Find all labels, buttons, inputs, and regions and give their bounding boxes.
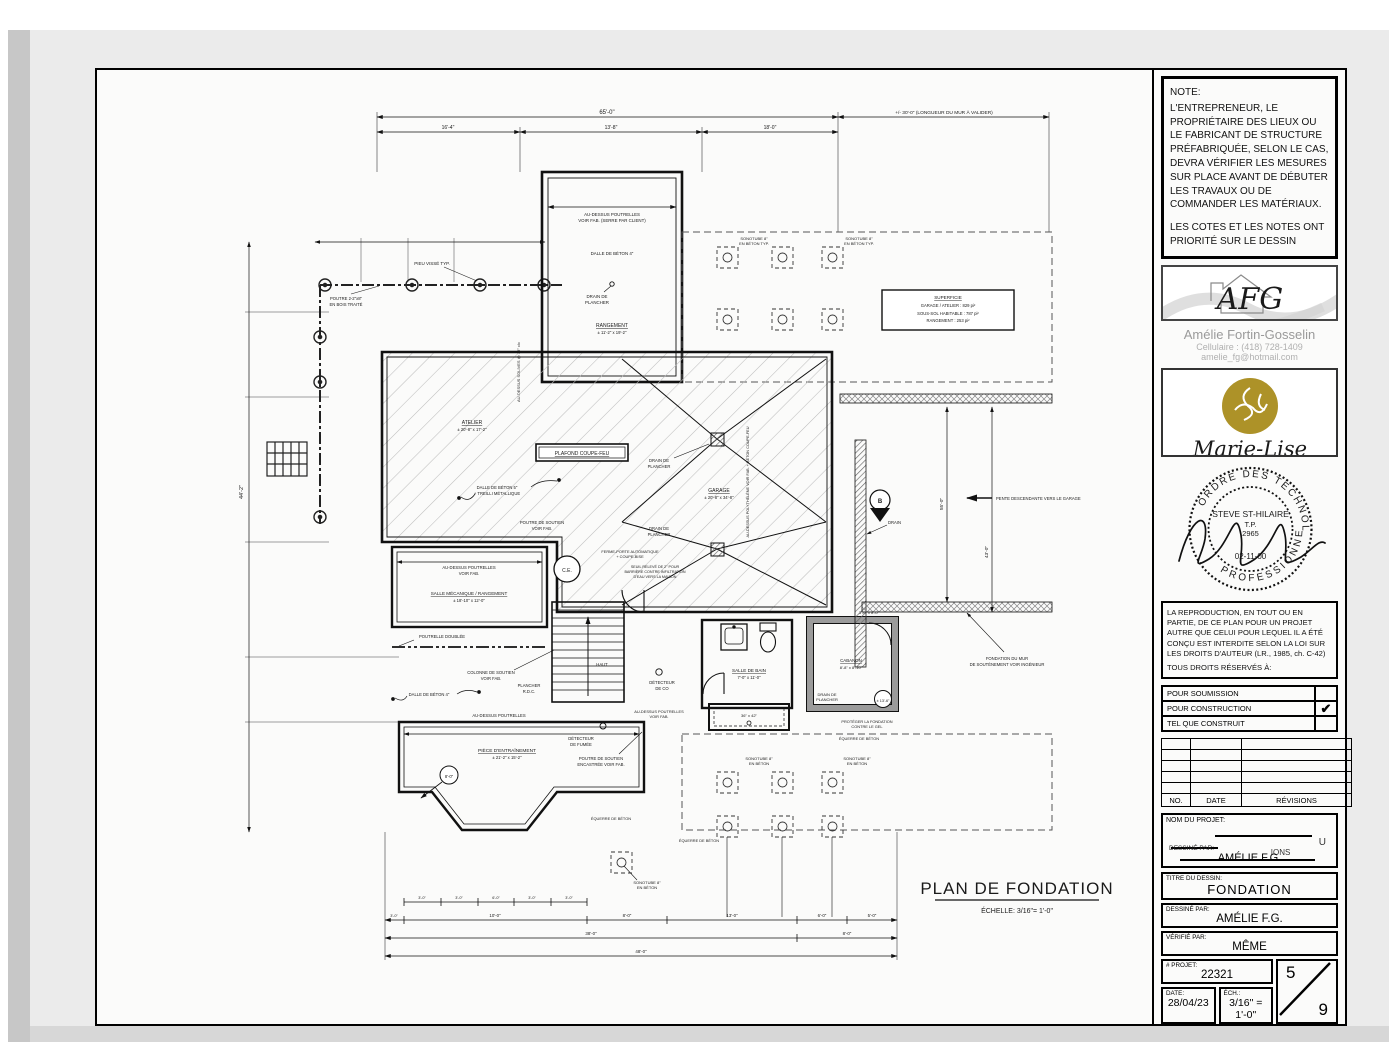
label-ps-2: VOIR FAB. <box>532 526 552 531</box>
label-drain-rangement-1: DRAIN DE <box>587 294 608 299</box>
label-dalle4-rangement: DALLE DE BÉTON 4" <box>591 251 634 256</box>
revision-cell <box>1242 739 1352 750</box>
poutre-enc-leader <box>619 732 642 754</box>
svg-text:FONDATION DU MUR: FONDATION DU MUR <box>986 656 1028 661</box>
label-aud-piece-1: AU-DESSUS POUTRELLES <box>472 713 525 718</box>
revision-cell <box>1162 783 1191 794</box>
label-atelier: ATELIER <box>462 420 483 426</box>
checkbox-row-construction: POUR CONSTRUCTION ✔ <box>1163 702 1336 717</box>
sheet-number-box: 5 9 <box>1276 959 1338 1024</box>
echelle-label: ÉCH.: <box>1224 990 1241 997</box>
svg-text:RANGEMENT : 253 pi²: RANGEMENT : 253 pi² <box>927 318 971 323</box>
revision-cell <box>1191 772 1242 783</box>
revision-cell <box>1162 739 1191 750</box>
dim-b13: 13'-0" <box>726 913 738 918</box>
plafond-coupe-feu-box: PLAFOND COUPE-FEU <box>536 444 628 461</box>
projet-label: # PROJET: <box>1166 962 1197 969</box>
revision-cell <box>1242 761 1352 772</box>
stamp-arc-top: ORDRE DES TECHNOLOGUES <box>1161 463 1311 533</box>
dim-sm0: 3'-0" <box>418 896 426 900</box>
plan-title: PLAN DE FONDATION <box>920 879 1113 898</box>
dim-sm4: 3'-0" <box>565 896 573 900</box>
colonne-leader <box>514 650 554 670</box>
dim-b3: 3'-0" <box>390 914 398 918</box>
revision-header-row: NO. DATE RÉVISIONS <box>1162 794 1352 807</box>
label-drain-cab-2: PLANCHER <box>816 697 838 702</box>
checkbox-cell[interactable] <box>1314 717 1336 730</box>
afg-tagline: dessinatrice en bâtiment <box>1196 319 1310 321</box>
svg-text:± 13'-6": ± 13'-6" <box>877 699 890 703</box>
stamp-title: T.P. <box>1245 520 1257 529</box>
label-equerre-b1: ÉQUERRE DE BÉTON <box>591 816 631 821</box>
label-dalle5-1: DALLE DE BÉTON 5" <box>477 485 518 490</box>
marielise-logo: Marie-Lise antiquité design <box>1163 370 1338 457</box>
revision-cell <box>1242 772 1352 783</box>
label-haut: HAUT <box>596 662 608 667</box>
checkbox-label: POUR CONSTRUCTION <box>1163 704 1314 713</box>
revision-cell <box>1191 761 1242 772</box>
label-atelier-size: ± 20'-8" x 17'-2" <box>457 427 487 432</box>
svg-text:DÉTECTEUR: DÉTECTEUR <box>568 736 594 741</box>
svg-text:DE SOUTÈNEMENT VOIR INGÉNIEUR: DE SOUTÈNEMENT VOIR INGÉNIEUR <box>970 662 1045 667</box>
label-poutre-encastree-2: ENCASTRÉE VOIR FAB. <box>577 762 624 767</box>
note-body-2: LES COTES ET LES NOTES ONT PRIORITÉ SUR … <box>1170 221 1329 249</box>
revision-table: NO. DATE RÉVISIONS <box>1161 738 1352 807</box>
checkbox-row-soumission: POUR SOUMISSION <box>1163 687 1336 702</box>
revision-cell <box>1191 783 1242 794</box>
revision-cell <box>1162 750 1191 761</box>
revision-header-date: DATE <box>1191 794 1242 807</box>
afg-contact: Amélie Fortin-Gosselin Cellulaire : (418… <box>1161 327 1338 362</box>
label-rdc-2: R.D.C. <box>523 689 536 694</box>
svg-text:SOUS-SOL HABITABLE : 787 pi²: SOUS-SOL HABITABLE : 787 pi² <box>917 311 979 316</box>
redaction-bar <box>1215 835 1312 837</box>
note-title: NOTE: <box>1170 86 1329 100</box>
marielise-name: Marie-Lise <box>1192 437 1307 457</box>
revision-cell <box>1162 772 1191 783</box>
dim-r43: 43'-0" <box>984 546 990 559</box>
svg-text:DE CO: DE CO <box>655 686 669 691</box>
sheet-number-total: 9 <box>1319 1000 1328 1020</box>
label-garage: GARAGE <box>708 488 730 494</box>
dim-b6: 6'-0" <box>818 913 827 918</box>
date-label: DATE: <box>1166 990 1184 997</box>
label-piece: PIÈCE D'ENTRAÎNEMENT <box>478 747 536 754</box>
dim-b8b: 8'-0" <box>843 931 852 936</box>
svg-text:B: B <box>878 499 883 505</box>
revision-cell <box>1242 750 1352 761</box>
label-dalle5-2: + TREILLI MÉTALLIQUE <box>474 491 520 496</box>
project-number-row: # PROJET: 22321 DATE: 28/04/23 ÉCH.: 3/1… <box>1161 959 1338 1024</box>
label-drain-wall: DRAIN <box>888 520 901 525</box>
label-rangement: RANGEMENT <box>596 323 628 329</box>
label-proteger-2: CONTRE LE GEL <box>851 724 883 729</box>
label-audessus-client-1: AU-DESSUS POUTRELLES <box>584 212 640 217</box>
label-sdb-size: 7'-0" x 11'-0" <box>737 675 761 680</box>
revision-cell <box>1191 750 1242 761</box>
dim-sm2: 6'-0" <box>492 896 500 900</box>
drain-wall-leader <box>867 525 887 534</box>
label-polythene: AU-DESSUS POLYTHÉLÈNE VOIR FAB. + BÉTON … <box>745 426 750 537</box>
dessine-box: DESSINÉ PAR: AMÉLIE F.G. <box>1161 903 1338 928</box>
svg-text:8'-0": 8'-0" <box>445 774 454 779</box>
professional-stamp: ORDRE DES TECHNOLOGUES PROFESSIONNELS ST… <box>1161 463 1338 595</box>
window-well <box>267 442 307 476</box>
checkbox-cell[interactable] <box>1314 687 1336 700</box>
dim-left-44: 44'-2" <box>239 485 245 499</box>
superficie-box: SUPERFICIE GARAGE / ATELIER : 829 pi² SO… <box>882 290 1014 330</box>
piece-entrainement-room <box>399 722 644 830</box>
dim-b48: 48'-0" <box>635 949 647 954</box>
label-pieu: PIEU VISSÉ TYP. <box>414 260 450 266</box>
label-seuil-3: D'EAU VERS LA MAISON <box>634 575 677 579</box>
plan-scale: ÉCHELLE: 3/16"= 1'-0" <box>981 906 1053 915</box>
plan-title-group: PLAN DE FONDATION ÉCHELLE: 3/16"= 1'-0" <box>920 879 1113 915</box>
revision-row <box>1162 739 1352 750</box>
label-equerre-b2: ÉQUERRE DE BÉTON <box>679 838 719 843</box>
detecteur-co: DÉTECTEUR DE CO <box>649 669 675 691</box>
dessine-par-label: DESSINÉ PAR: <box>1169 845 1214 852</box>
copyright-box: LA REPRODUCTION, EN TOUT OU EN PARTIE, D… <box>1161 601 1338 680</box>
revision-header-revisions: RÉVISIONS <box>1242 794 1352 807</box>
dim-b5: 5'-0" <box>868 913 877 918</box>
revision-row <box>1162 783 1352 794</box>
drawing-sheet: 65'-0" +/- 30'-0" (LONGUEUR DU MUR À VAL… <box>95 68 1347 1026</box>
sono-s-leader <box>624 866 637 880</box>
svg-text:PLAFOND COUPE-FEU: PLAFOND COUPE-FEU <box>555 451 610 457</box>
stairs <box>552 602 624 702</box>
dimensions-top <box>377 112 1049 232</box>
label-seuil-1: SEUIL RELEVÉ DE 2" POUR <box>631 564 680 569</box>
label-aud-bath-2: VOIR FAB. <box>649 714 668 719</box>
label-equerre-cab: ÉQUERRE DE BÉTON <box>839 736 879 741</box>
label-drain-garage-1: DRAIN DE <box>649 458 669 463</box>
stamp-seal: ORDRE DES TECHNOLOGUES PROFESSIONNELS ST… <box>1161 463 1340 595</box>
revision-cell <box>1242 783 1352 794</box>
label-sonotube-tr2-2: EN BÉTON TYP. <box>844 241 874 246</box>
dim-r55: 55'-0" <box>939 498 945 511</box>
dim-b38: 38'-0" <box>585 931 597 936</box>
afg-logo-box: AFG dessinatrice en bâtiment <box>1161 265 1338 321</box>
svg-text:PENTE DESCENDANTE VERS LE GARA: PENTE DESCENDANTE VERS LE GARAGE <box>996 496 1081 501</box>
echelle-box: ÉCH.: 3/16" = 1'-0" <box>1219 987 1274 1024</box>
project-name-box: NOM DU PROJET: U IONS DESSINÉ PAR: AMÉLI… <box>1161 813 1338 868</box>
label-sonotube-b1-2: EN BÉTON <box>749 761 769 766</box>
svg-text:DÉTECTEUR: DÉTECTEUR <box>649 680 675 685</box>
fondation-mur-callout: FONDATION DU MUR DE SOUTÈNEMENT VOIR ING… <box>967 613 1044 667</box>
label-drain-garage-2: PLANCHER <box>648 464 671 469</box>
label-piece-size: ± 21'-2" x 15'-2" <box>492 755 522 760</box>
label-rdc-1: PLANCHER <box>518 683 541 688</box>
label-sonotube-s-2: EN BÉTON <box>637 885 657 890</box>
revision-row <box>1162 761 1352 772</box>
rangement-room <box>542 172 682 382</box>
desktop-bottom-bar <box>30 1026 1389 1042</box>
svg-text:GARAGE / ATELIER : 829 pi²: GARAGE / ATELIER : 829 pi² <box>921 303 976 308</box>
height-13-marker: ± 13'-6" <box>875 691 892 708</box>
stamp-number: 2965 <box>1242 529 1259 538</box>
stamp-name: STEVE ST-HILAIRE <box>1212 509 1289 519</box>
label-salle-mec: SALLE MÉCANIQUE / RANGEMENT <box>431 590 508 596</box>
marielise-logo-box: Marie-Lise antiquité design <box>1161 368 1338 457</box>
pente-callout: PENTE DESCENDANTE VERS LE GARAGE <box>967 496 1081 501</box>
note-body: L'ENTREPRENEUR, LE PROPRIÉTAIRE DES LIEU… <box>1170 102 1329 212</box>
checkbox-row-telque: TEL QUE CONSTRUIT <box>1163 717 1336 732</box>
designer-name: Amélie Fortin-Gosselin <box>1161 327 1338 342</box>
checkmark-icon[interactable]: ✔ <box>1314 702 1336 715</box>
dessine-par-value: AMÉLIE F.G. <box>1163 852 1336 864</box>
label-aud-smec-2: VOIR FAB. <box>459 571 479 576</box>
verifie-label: VÉRIFIÉ PAR: <box>1166 934 1206 941</box>
copyright-body: LA REPRODUCTION, EN TOUT OU EN PARTIE, D… <box>1167 608 1332 659</box>
label-poutre-encastree-1: POUTRE DE SOUTIEN <box>579 756 623 761</box>
bathroom <box>702 620 792 708</box>
label-shower-size: 36" x 42" <box>741 713 758 718</box>
date-box: DATE: 28/04/23 <box>1161 987 1216 1024</box>
retaining-wall <box>840 394 1052 667</box>
checkbox-label: POUR SOUMISSION <box>1163 689 1314 698</box>
label-salle-mec-size: ± 18'-10" x 12'-0" <box>453 598 485 603</box>
checkbox-label: TEL QUE CONSTRUIT <box>1163 719 1314 728</box>
label-ferme-2: + COUPE-BISE <box>616 554 644 559</box>
chauffe-eau: C.E. <box>554 556 580 582</box>
label-drain-garage2-1: DRAIN DE <box>649 526 669 531</box>
svg-text:SUPERFICIE: SUPERFICIE <box>934 295 962 300</box>
plan-drawing-area: 65'-0" +/- 30'-0" (LONGUEUR DU MUR À VAL… <box>99 72 1149 1020</box>
label-audessus-client-2: VOIR FAB. (SERRE PAR CLIENT) <box>578 218 646 223</box>
project-name-fragment: U <box>1319 837 1326 848</box>
dim-top-mur: +/- 30'-0" (LONGUEUR DU MUR À VALIDER) <box>895 109 993 116</box>
designer-phone: Cellulaire : (418) 728-1409 <box>1161 342 1338 352</box>
screenshot-stage: 65'-0" +/- 30'-0" (LONGUEUR DU MUR À VAL… <box>0 0 1389 1042</box>
label-ps-1: POUTRE DE SOUTIEN <box>520 520 564 525</box>
copyright-footer: TOUS DROITS RÉSERVÉS À: <box>1167 663 1332 673</box>
designer-email[interactable]: amelie_fg@hotmail.com <box>1161 352 1338 362</box>
label-poutre-bois-2: EN BOIS TRAITÉ <box>330 302 363 307</box>
dim-sm3: 3'-0" <box>528 896 536 900</box>
dimensions-right <box>947 407 992 612</box>
revision-row <box>1162 772 1352 783</box>
revision-row <box>1162 750 1352 761</box>
title-block-column: NOTE: L'ENTREPRENEUR, LE PROPRIÉTAIRE DE… <box>1152 70 1345 1024</box>
afg-initials: AFG <box>1214 282 1283 317</box>
label-aud-smec-1: AU-DESSUS POUTRELLES <box>442 565 495 570</box>
revision-header-no: NO. <box>1162 794 1191 807</box>
dim-sm1: 3'-0" <box>455 896 463 900</box>
label-poutrelle-doublee: POUTRELLE DOUBLÉE <box>419 634 465 639</box>
titre-dessin-box: TITRE DU DESSIN: FONDATION <box>1161 872 1338 900</box>
projet-box: # PROJET: 22321 <box>1161 959 1273 984</box>
dessine-label: DESSINÉ PAR: <box>1166 906 1210 913</box>
label-sonotube-b2-2: EN BÉTON <box>847 761 867 766</box>
label-garage-size: ± 20'-8" x 34'-8" <box>704 495 734 500</box>
svg-text:C.E.: C.E. <box>562 568 572 574</box>
label-dalle4-piece: DALLE DE BÉTON 4" <box>409 692 450 697</box>
svg-text:ORDRE DES TECHNOLOGUES: ORDRE DES TECHNOLOGUES <box>1161 463 1311 533</box>
date-ech-row: DATE: 28/04/23 ÉCH.: 3/16" = 1'-0" <box>1161 987 1273 1024</box>
project-name-label: NOM DU PROJET: <box>1166 817 1225 824</box>
note-box: NOTE: L'ENTREPRENEUR, LE PROPRIÉTAIRE DE… <box>1161 76 1338 259</box>
foundation-plan-svg: 65'-0" +/- 30'-0" (LONGUEUR DU MUR À VAL… <box>99 72 1149 1020</box>
section-marker-b: B <box>870 490 890 522</box>
label-sonotube-tr-2: EN BÉTON TYP. <box>739 241 769 246</box>
label-sdb: SALLE DE BAIN <box>732 668 766 673</box>
revision-cell <box>1191 739 1242 750</box>
dim-b10: 10'-0" <box>489 913 501 918</box>
revision-cell <box>1162 761 1191 772</box>
checkbox-table: POUR SOUMISSION POUR CONSTRUCTION ✔ TEL … <box>1161 685 1338 732</box>
dim-top-overall: 65'-0" <box>599 110 614 116</box>
titre-label: TITRE DU DESSIN: <box>1166 875 1222 882</box>
salle-mecanique-room <box>392 547 547 647</box>
desktop-left-bar <box>8 30 30 1042</box>
label-seuil-2: BARRIÈRE CONTRE INFILTRATION <box>624 569 685 574</box>
label-drain-rangement-2: PLANCHER <box>585 300 609 305</box>
dim-t1: 16'-4" <box>442 125 455 131</box>
label-rangement-size: ± 11'-2" x 19'-2" <box>598 330 627 335</box>
dim-b8: 8'-0" <box>623 913 632 918</box>
dim-t2: 13'-8" <box>605 125 618 131</box>
afg-logo: AFG dessinatrice en bâtiment <box>1163 267 1338 321</box>
dim-t3: 18'-0" <box>764 125 777 131</box>
label-colonne-2: VOIR FAB. <box>481 676 501 681</box>
sheet-number-current: 5 <box>1286 963 1295 983</box>
label-colonne-1: COLONNE DE SOUTIEN <box>467 670 514 675</box>
label-drain-garage2-2: PLANCHER <box>648 532 671 537</box>
label-poutre-bois-1: POUTRE 2-2"x8" <box>330 296 363 301</box>
svg-text:DE FUMÉE: DE FUMÉE <box>570 742 592 747</box>
verifie-box: VÉRIFIÉ PAR: MÊME <box>1161 931 1338 956</box>
